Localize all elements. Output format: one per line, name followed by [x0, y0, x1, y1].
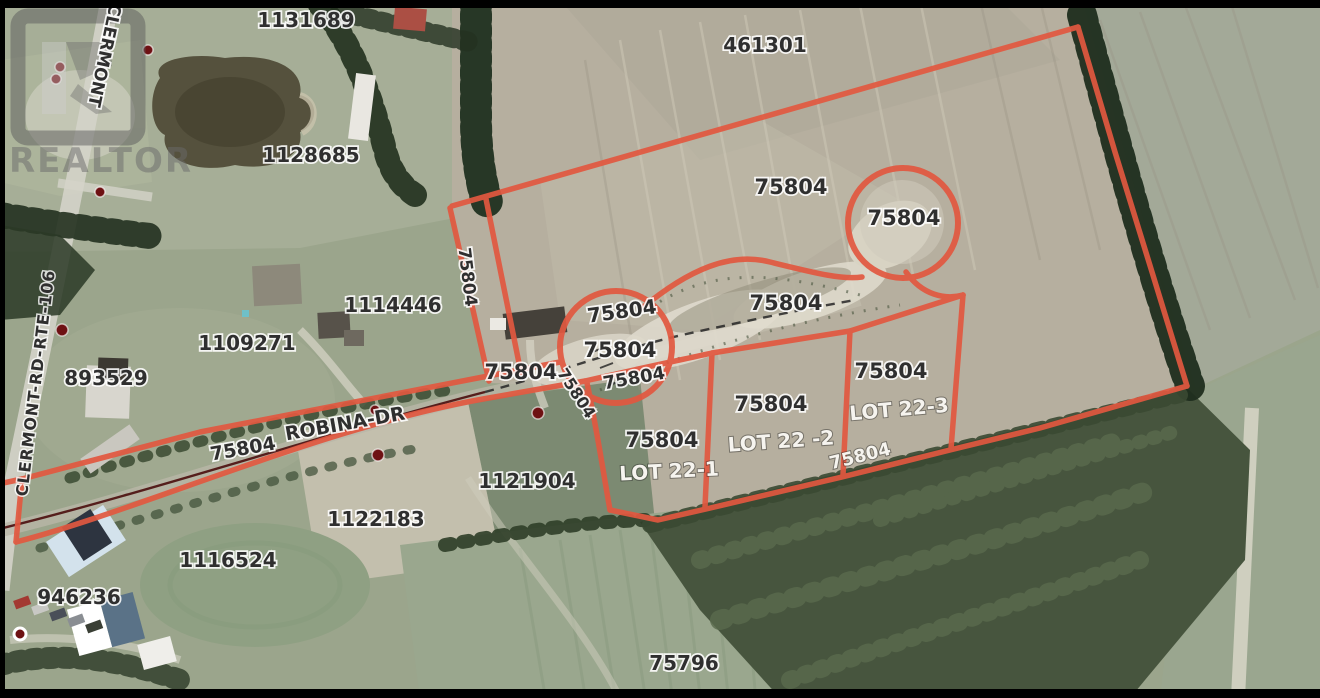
red-barn [393, 7, 427, 32]
pid-label-75804-lot1: 75804 [625, 428, 698, 452]
parcel-label-893529: 893529 [64, 366, 148, 390]
parcel-label-1131689: 1131689 [257, 8, 354, 32]
aerial-map-screenshot: REALTOR CLERMONT 1131689 1128685 461301 … [0, 0, 1320, 698]
pid-label-75804-pit: 75804 [749, 291, 822, 315]
map-image: REALTOR CLERMONT 1131689 1128685 461301 … [0, 0, 1320, 698]
pid-label-75804-circle-mid: 75804 [583, 338, 656, 362]
parcel-label-1122183: 1122183 [327, 507, 424, 531]
watermark-text: REALTOR [9, 141, 193, 181]
pid-label-75804-upper: 75804 [754, 175, 827, 199]
pid-label-75804-lot3: 75804 [854, 359, 927, 383]
parcel-label-75796: 75796 [649, 651, 719, 675]
pid-label-75804-west: 75804 [484, 360, 557, 384]
parcel-label-1121904: 1121904 [478, 469, 575, 493]
parcel-label-1128685: 1128685 [262, 143, 359, 167]
parcel-label-461301: 461301 [723, 33, 807, 57]
pool [242, 310, 249, 317]
parcel-label-1109271: 1109271 [198, 331, 295, 355]
parcel-label-1116524: 1116524 [179, 548, 276, 572]
parcel-label-946236: 946236 [37, 585, 121, 609]
pid-label-75804-balloon: 75804 [867, 206, 940, 230]
pid-label-75804-lot2: 75804 [734, 392, 807, 416]
parcel-label-1114446: 1114446 [344, 293, 441, 317]
